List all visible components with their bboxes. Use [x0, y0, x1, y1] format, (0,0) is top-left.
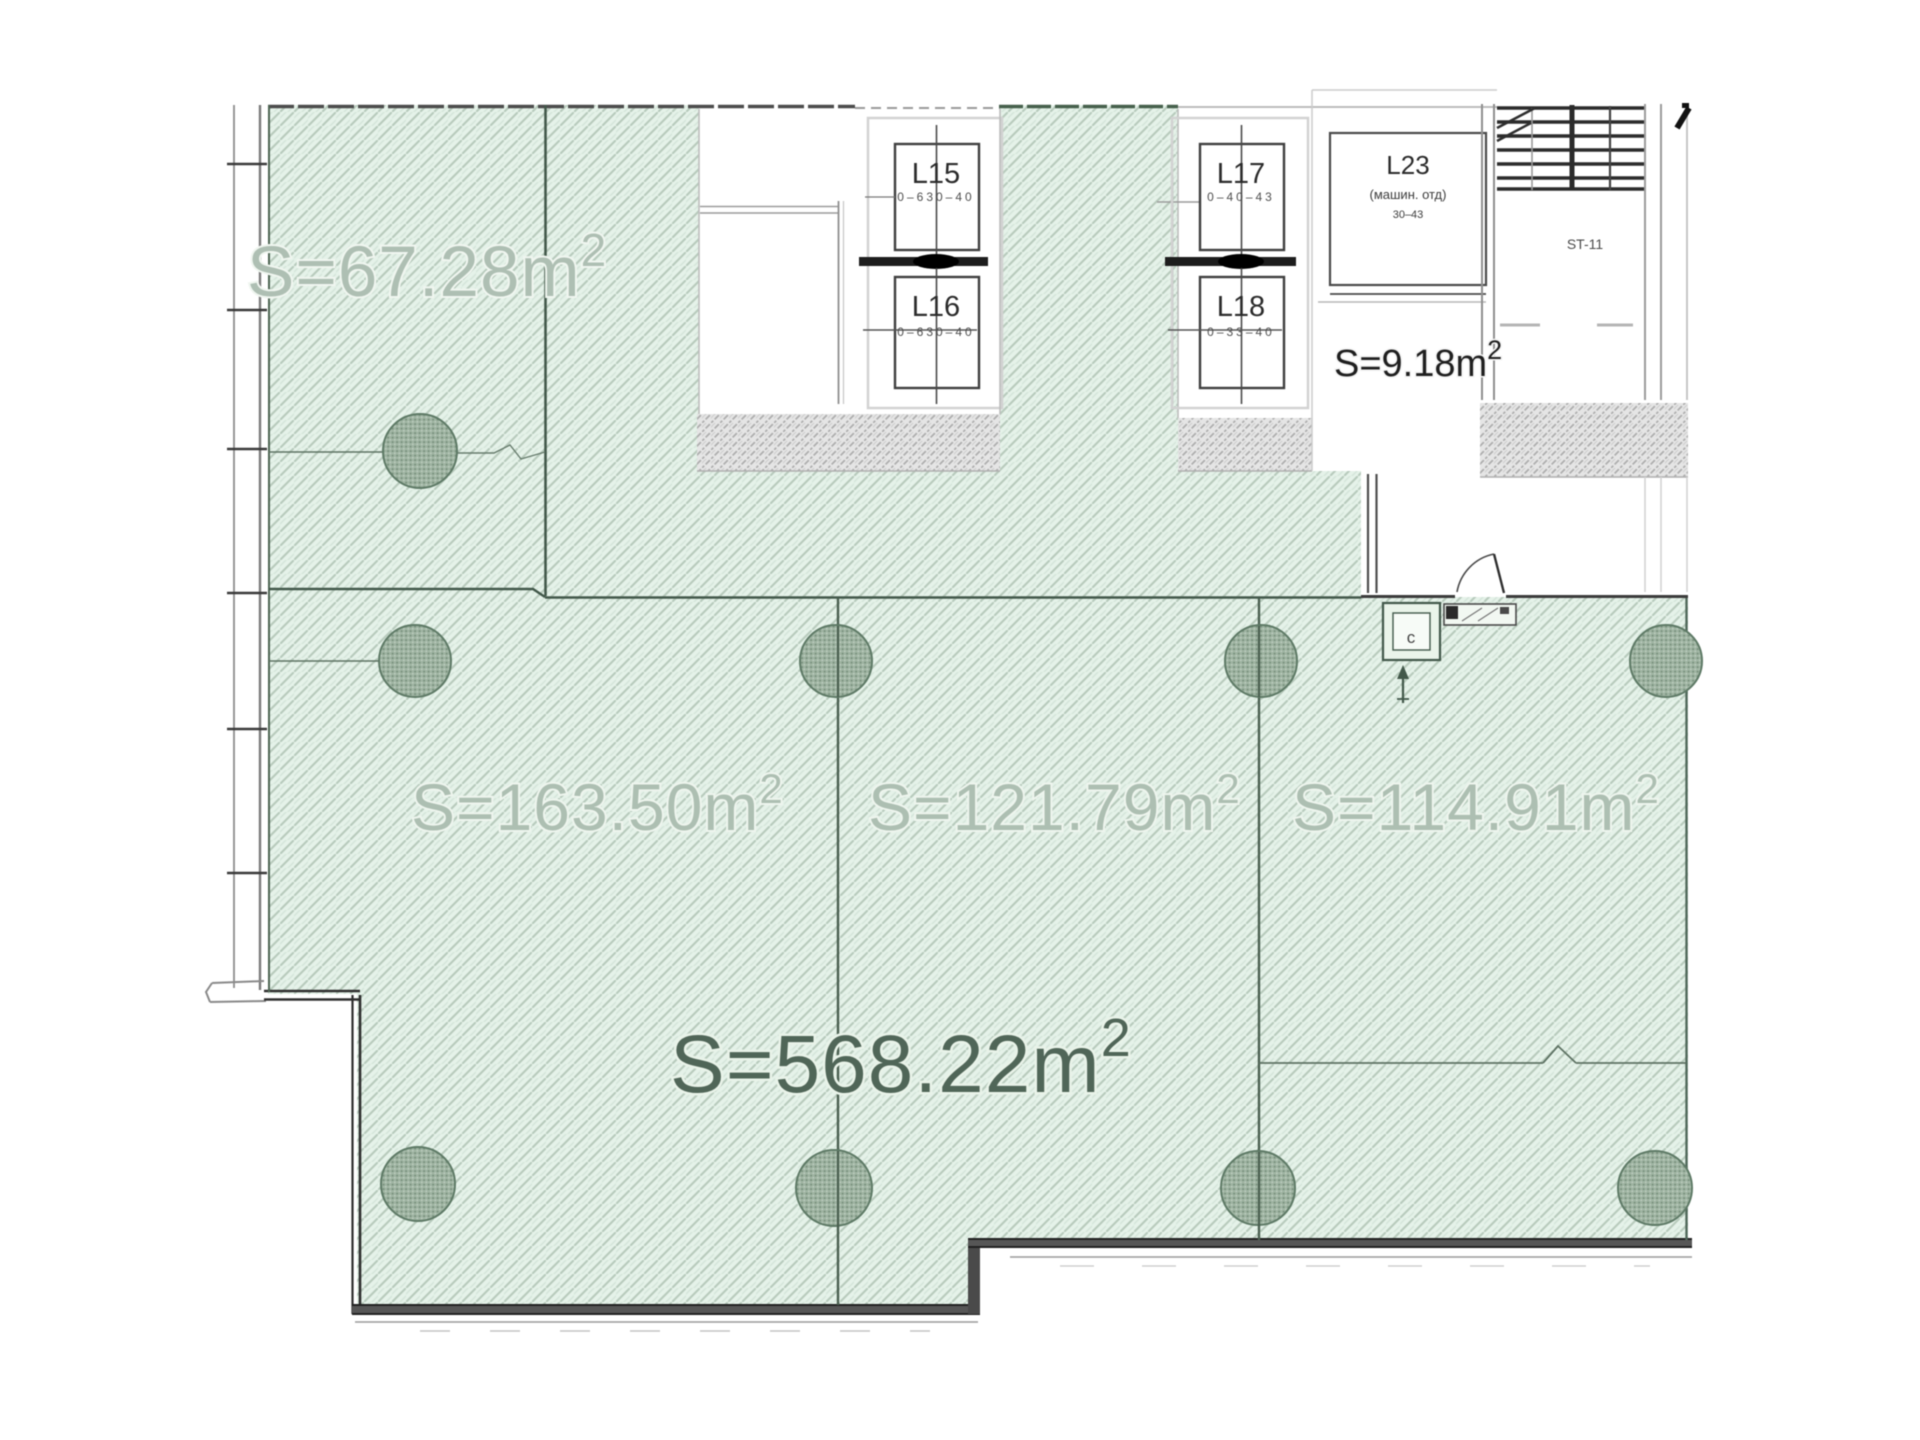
svg-text:S=9.18m2: S=9.18m2: [1334, 335, 1502, 385]
svg-text:L23: L23: [1386, 150, 1429, 180]
svg-text:c: c: [1407, 628, 1416, 647]
svg-text:S=114.91m2: S=114.91m2: [1292, 765, 1660, 844]
svg-text:S=67.28m2: S=67.28m2: [247, 224, 607, 312]
svg-text:L16: L16: [912, 291, 960, 323]
svg-text:L18: L18: [1217, 291, 1265, 323]
svg-text:L17: L17: [1217, 158, 1265, 190]
svg-text:0–630–40: 0–630–40: [897, 325, 974, 339]
svg-text:0–630–40: 0–630–40: [897, 190, 974, 204]
svg-text:0–33–40: 0–33–40: [1207, 325, 1275, 339]
svg-text:S=121.79m2: S=121.79m2: [868, 765, 1241, 844]
svg-text:S=568.22m2: S=568.22m2: [670, 1008, 1132, 1110]
svg-text:ST-11: ST-11: [1567, 236, 1604, 252]
svg-text:(машин. отд): (машин. отд): [1370, 187, 1447, 202]
svg-text:0–40–43: 0–40–43: [1207, 190, 1275, 204]
svg-text:L15: L15: [912, 158, 960, 190]
svg-text:30–43: 30–43: [1393, 209, 1424, 221]
svg-text:S=163.50m2: S=163.50m2: [411, 765, 784, 844]
